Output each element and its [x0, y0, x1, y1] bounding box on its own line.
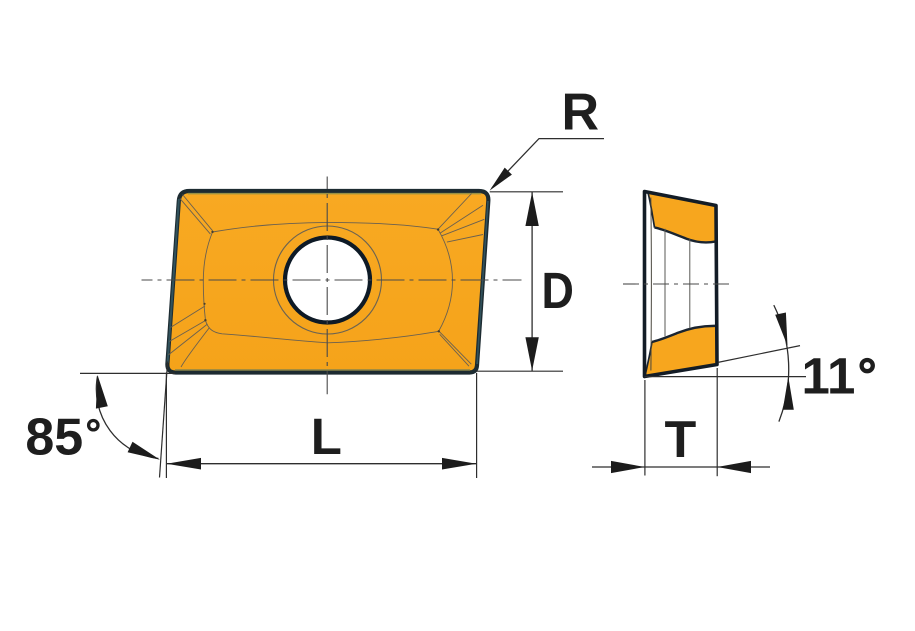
svg-text:T: T — [665, 411, 697, 469]
svg-text:R: R — [562, 83, 600, 141]
svg-text:D: D — [542, 263, 574, 319]
svg-text:11: 11 — [802, 348, 856, 405]
svg-text:85: 85 — [25, 409, 83, 467]
svg-text:L: L — [311, 408, 342, 465]
